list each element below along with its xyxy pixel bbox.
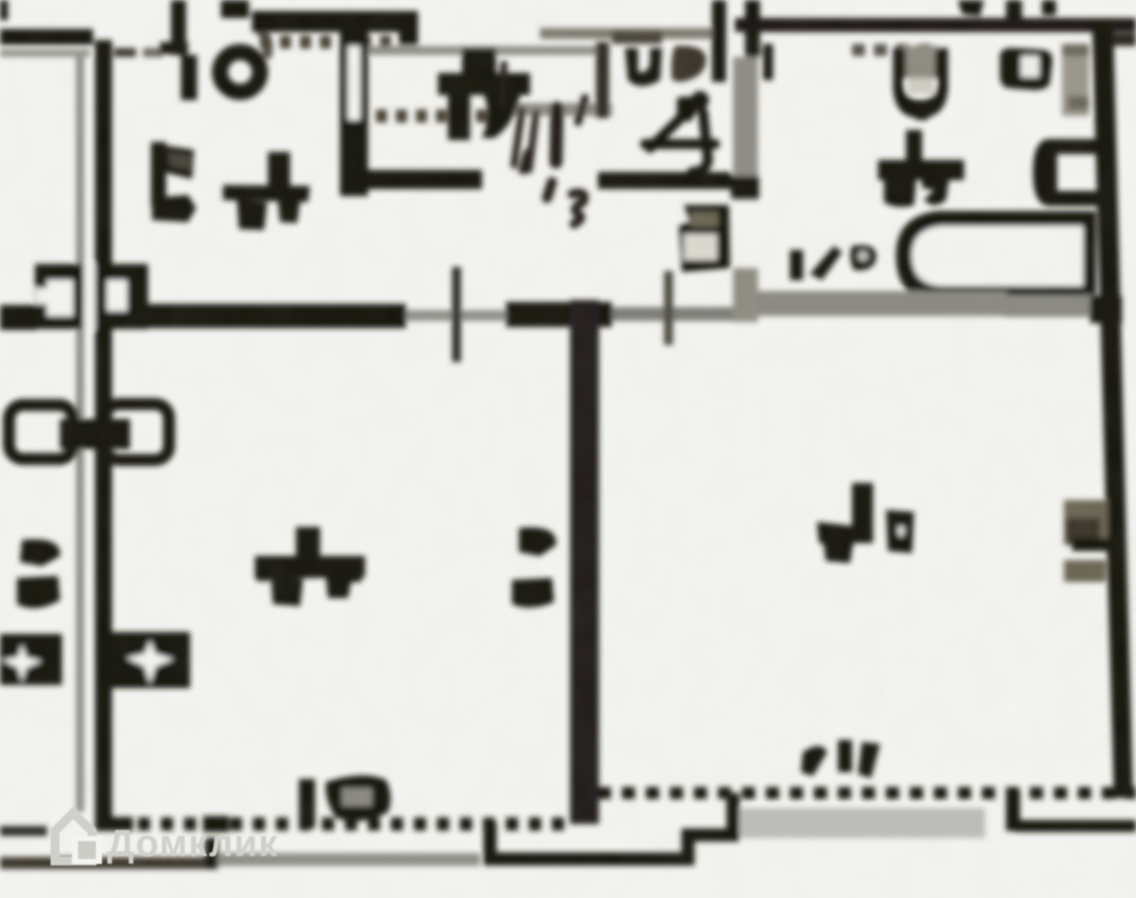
svg-text:Домклик: Домклик — [107, 823, 278, 865]
